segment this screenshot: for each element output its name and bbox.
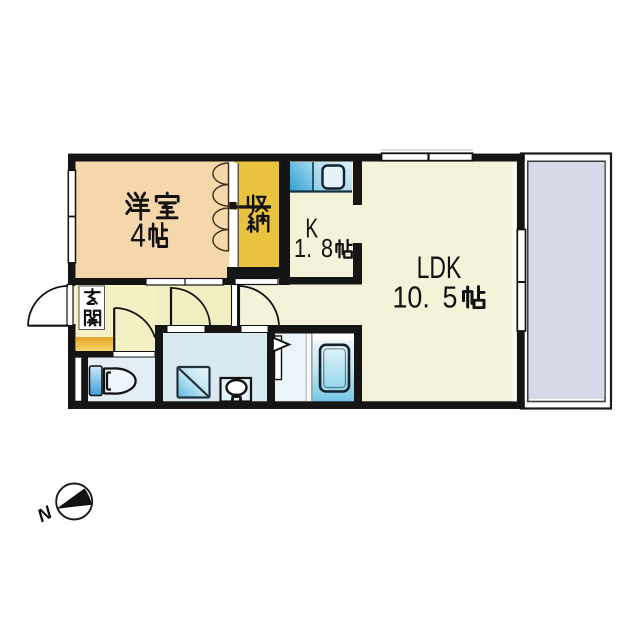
svg-text:1.: 1. xyxy=(294,236,312,264)
svg-text:10.: 10. xyxy=(393,281,430,315)
svg-text:8: 8 xyxy=(321,236,333,264)
svg-text:LDK: LDK xyxy=(417,249,462,284)
svg-text:5: 5 xyxy=(443,281,458,315)
svg-text:4: 4 xyxy=(130,217,146,254)
